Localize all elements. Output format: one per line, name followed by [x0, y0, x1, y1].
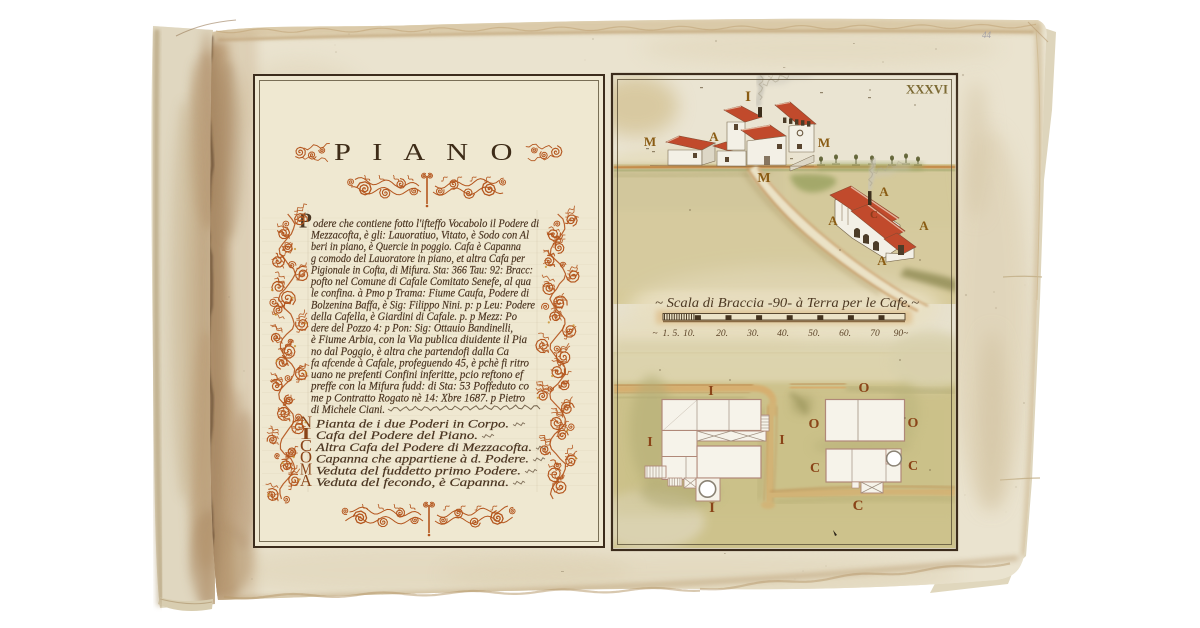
svg-text:fa afcende à Cafale, profeguen: fa afcende à Cafale, profeguendo 45, è p… [311, 357, 529, 369]
svg-text:le confina. à Pmo p Trama: Fiu: le confina. à Pmo p Trama: Fiume Caufa, … [311, 288, 529, 300]
svg-text:g comodo del Lauoratore in pia: g comodo del Lauoratore in piano, et alt… [311, 253, 526, 265]
svg-text:30.: 30. [746, 329, 759, 339]
svg-text:è Fiume Arbia, con la Via publ: è Fiume Arbia, con la Via publica diuide… [311, 334, 527, 346]
svg-text:90~: 90~ [894, 329, 909, 339]
svg-text:O: O [908, 416, 919, 431]
svg-text:uano ne prefenti Confini infer: uano ne prefenti Confini inferitte, pcio… [311, 369, 525, 381]
svg-text:XXXVI: XXXVI [906, 82, 948, 97]
svg-text:beri in piano, è Quercie in po: beri in piano, è Quercie in poggio. Cafa… [311, 241, 521, 253]
svg-text:60.: 60. [839, 329, 851, 339]
svg-text:40.: 40. [777, 329, 789, 339]
svg-text:M: M [757, 171, 770, 186]
svg-text:O: O [859, 381, 870, 396]
svg-text:Pigionale in Cofta, di Mifura.: Pigionale in Cofta, di Mifura. Sta: 366 … [310, 265, 533, 277]
svg-text:I: I [709, 500, 715, 516]
svg-text:I: I [779, 433, 784, 448]
svg-text:A: A [709, 129, 719, 144]
svg-text:C: C [908, 459, 918, 474]
svg-text:I: I [708, 384, 713, 399]
svg-text:A: A [828, 213, 838, 228]
svg-text:M: M [818, 135, 830, 150]
svg-text:~: ~ [652, 329, 657, 339]
svg-text:pofto nel Comune di Cafale Com: pofto nel Comune di Cafale Comitato Sene… [310, 276, 531, 288]
svg-text:70: 70 [870, 329, 880, 339]
svg-text:50.: 50. [808, 329, 820, 339]
svg-text:10.: 10. [683, 329, 695, 339]
svg-text:Veduta del fecondo, è Capanna.: Veduta del fecondo, è Capanna. [316, 477, 509, 489]
svg-text:5.: 5. [672, 329, 679, 339]
svg-text:preffe con la Mifura fudd: di: preffe con la Mifura fudd: di Sta: 53 Po… [310, 381, 529, 393]
svg-text:Veduta del fuddetto primo Pode: Veduta del fuddetto primo Podere. [316, 465, 521, 477]
svg-text:Mezzacofta, è gli: Lauoratiuo,: Mezzacofta, è gli: Lauoratiuo, Vitato, è… [310, 230, 529, 242]
svg-text:no dal Poggio, è altra che par: no dal Poggio, è altra che partendofi da… [311, 346, 509, 358]
svg-text:C: C [853, 498, 864, 514]
svg-text:C: C [810, 461, 820, 476]
svg-text:dere del Pozzo 4: p Pon: Sig:: dere del Pozzo 4: p Pon: Sig: Ottauio Ba… [311, 323, 513, 335]
svg-text:44: 44 [982, 30, 992, 40]
svg-text:O: O [809, 417, 820, 432]
svg-text:A: A [300, 471, 313, 490]
svg-text:Pianta de i due Poderi in Corp: Pianta de i due Poderi in Corpo. [315, 419, 509, 431]
svg-text:20.: 20. [716, 329, 728, 339]
svg-text:Altra Cafa del Podere di Mezza: Altra Cafa del Podere di Mezzacofta. [315, 442, 532, 454]
svg-text:Capanna che appartiene à d. Po: Capanna che appartiene à d. Podere. [316, 454, 529, 466]
svg-text:A: A [877, 253, 887, 268]
svg-text:odere che contiene fotto l'ift: odere che contiene fotto l'ifteffo Vocab… [313, 218, 539, 230]
svg-text:C: C [870, 209, 878, 221]
svg-text:A: A [919, 218, 929, 233]
svg-text:M: M [644, 134, 656, 149]
svg-text:della Cafella, è Giardini di C: della Cafella, è Giardini di Cafale. p. … [311, 311, 517, 323]
svg-text:A: A [879, 184, 889, 199]
svg-text:di Michele Ciani.: di Michele Ciani. [311, 404, 385, 416]
svg-text:Cafa del Podere del Piano.: Cafa del Podere del Piano. [316, 430, 478, 442]
svg-text:1.: 1. [662, 329, 669, 339]
svg-text:~ Scala di Braccia -90- à Terr: ~ Scala di Braccia -90- à Terra per le C… [655, 295, 920, 310]
svg-text:I: I [745, 89, 751, 105]
svg-text:I: I [647, 435, 652, 450]
svg-text:P I A N O: P I A N O [334, 139, 520, 166]
svg-text:me p Contratto Rogato nè 14: X: me p Contratto Rogato nè 14: Xbre 1687. … [311, 392, 525, 404]
svg-text:Bolzenina Baffa, è Sig: Filipp: Bolzenina Baffa, è Sig: Filippo Nini. p:… [311, 299, 535, 311]
